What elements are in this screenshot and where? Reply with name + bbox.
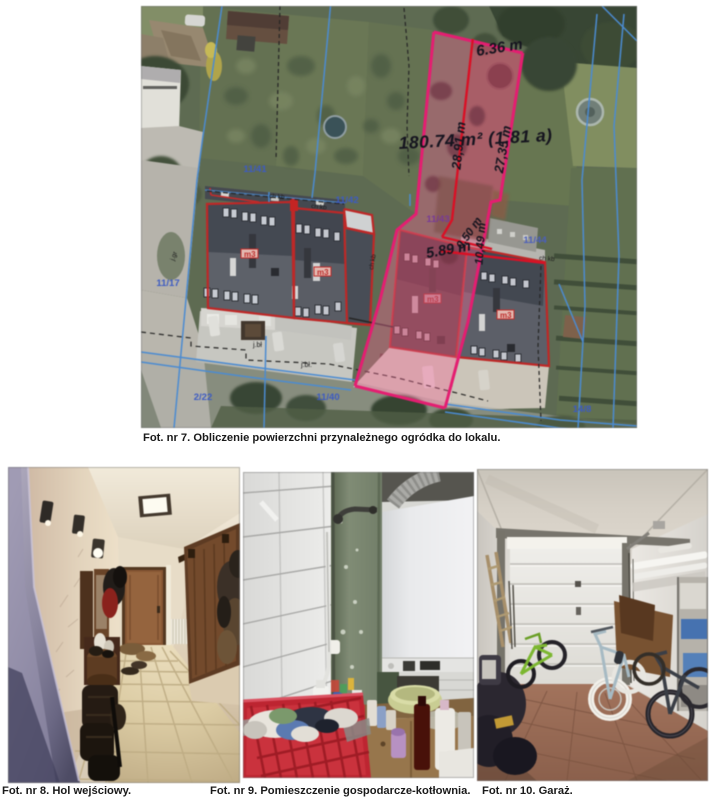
svg-text:11/41: 11/41 bbox=[243, 164, 267, 175]
svg-text:2/22: 2/22 bbox=[194, 392, 213, 403]
svg-text:j.bł: j.bł bbox=[252, 342, 262, 349]
svg-text:11/42: 11/42 bbox=[335, 195, 358, 206]
svg-text:j.bł.: j.bł. bbox=[300, 362, 312, 369]
svg-text:11/43: 11/43 bbox=[426, 214, 449, 225]
svg-text:11/44: 11/44 bbox=[523, 235, 547, 246]
svg-text:11/17: 11/17 bbox=[156, 278, 179, 289]
svg-text:ch kb: ch kb bbox=[269, 193, 285, 201]
svg-text:11/40: 11/40 bbox=[316, 392, 339, 403]
svg-text:ch kb: ch kb bbox=[539, 255, 555, 263]
svg-text:14/8: 14/8 bbox=[573, 404, 592, 415]
